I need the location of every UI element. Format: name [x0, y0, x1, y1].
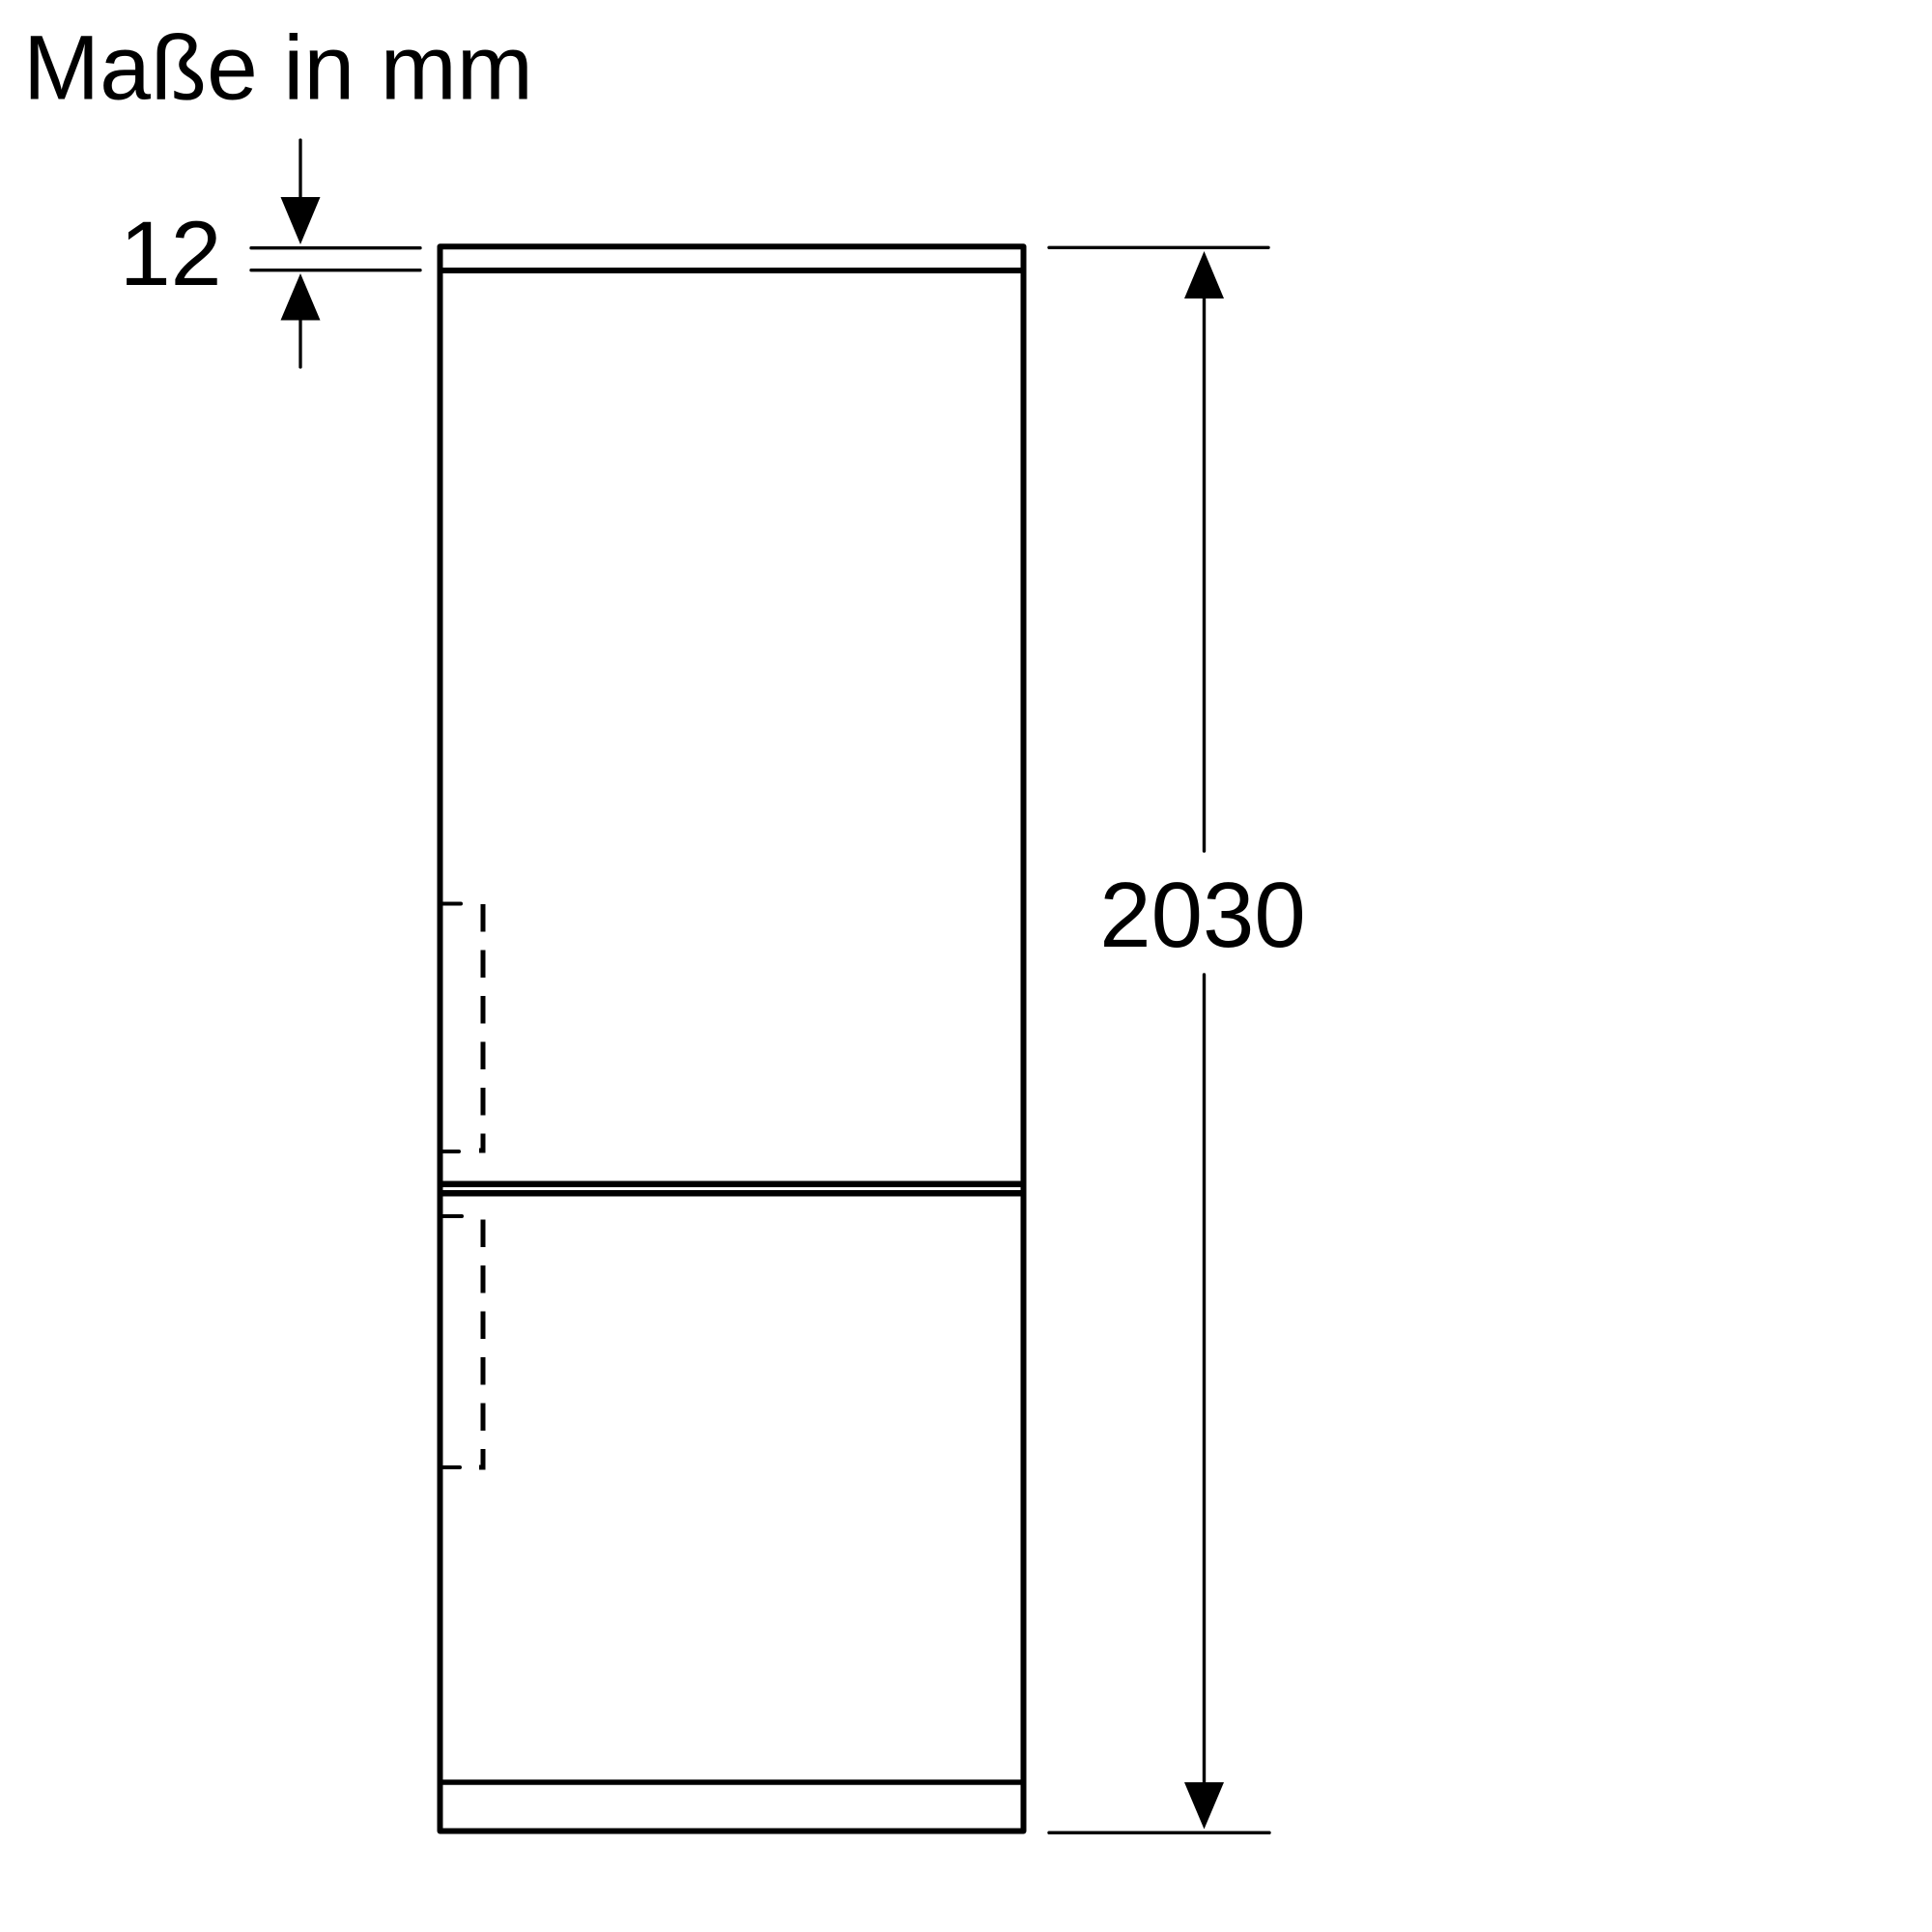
- svg-text:12: 12: [120, 203, 222, 305]
- svg-text:2030: 2030: [1099, 864, 1306, 967]
- svg-text:Maße in mm: Maße in mm: [23, 17, 533, 120]
